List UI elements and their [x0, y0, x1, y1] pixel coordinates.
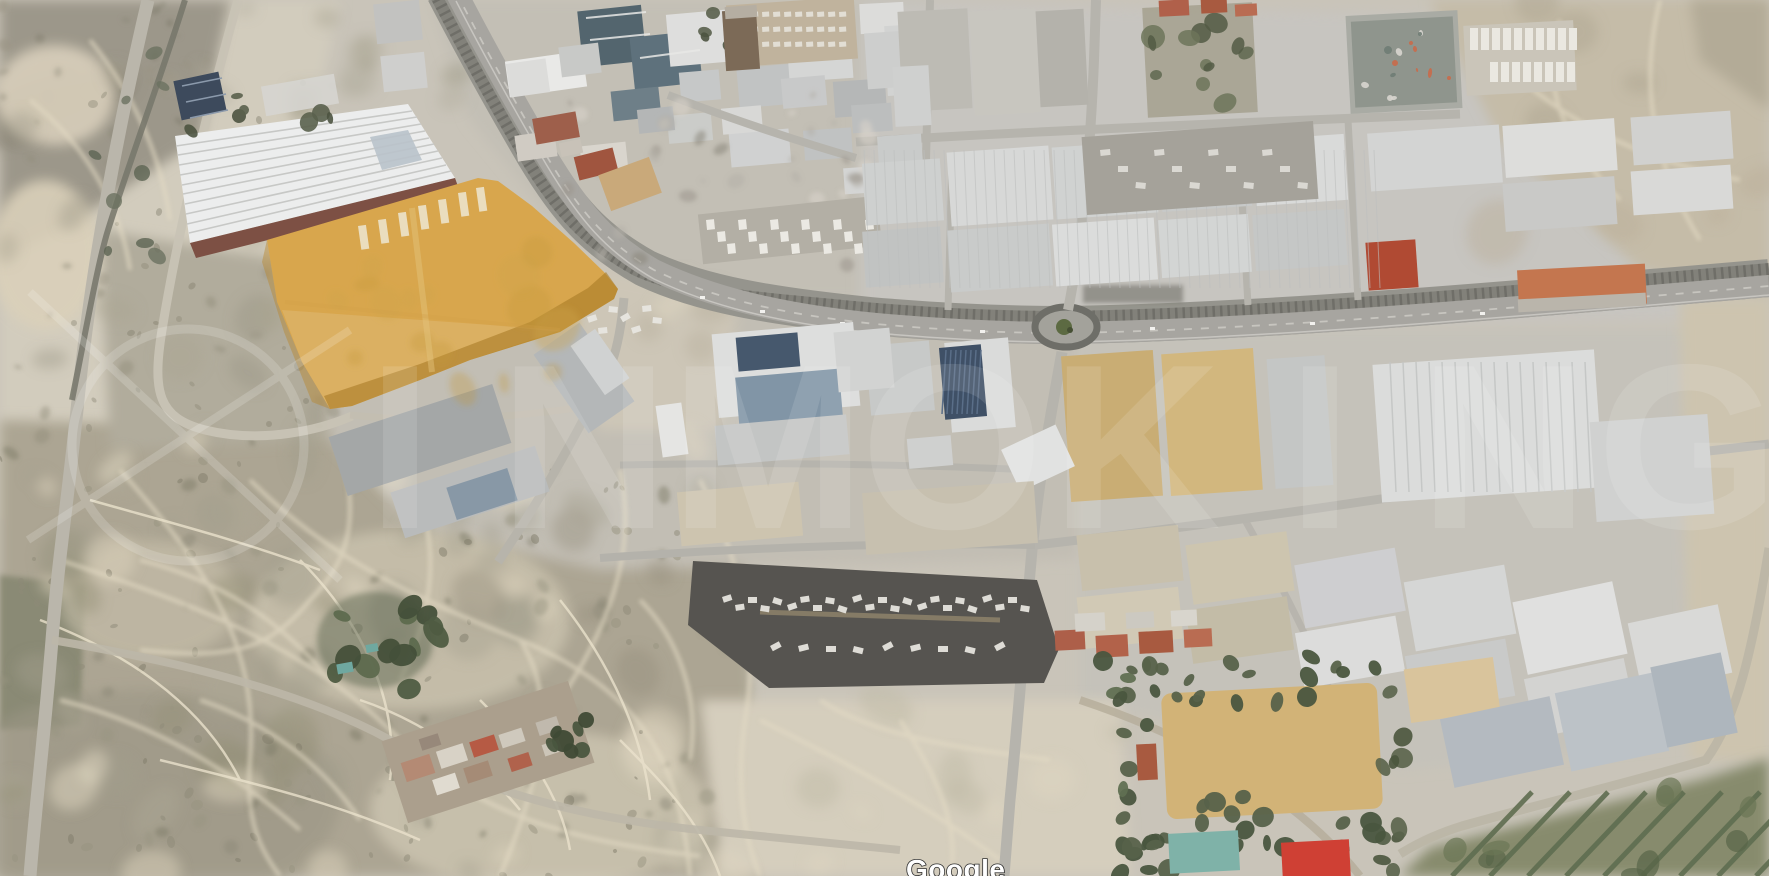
svg-text:K: K — [1051, 315, 1221, 578]
svg-text:M: M — [670, 315, 866, 578]
svg-text:I: I — [1287, 315, 1352, 578]
svg-text:N: N — [1419, 315, 1589, 578]
svg-text:I: I — [367, 315, 432, 578]
svg-text:O: O — [861, 315, 1044, 578]
svg-text:Google: Google — [906, 854, 1005, 876]
svg-text:N: N — [499, 315, 669, 578]
svg-text:G: G — [1597, 315, 1769, 578]
